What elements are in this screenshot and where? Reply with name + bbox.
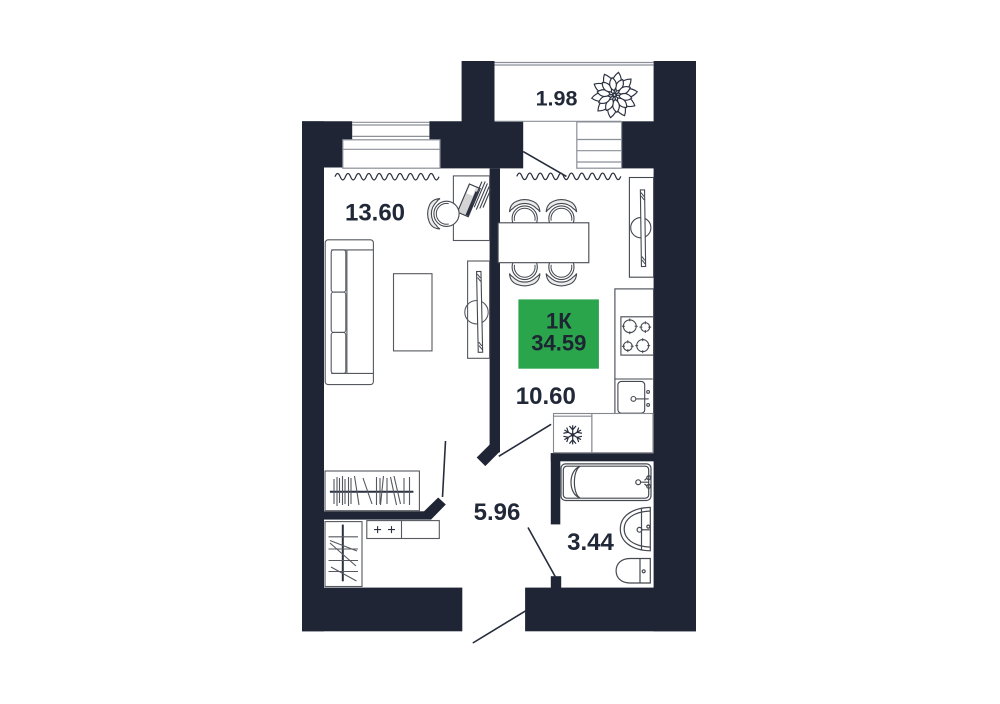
svg-text:1.98: 1.98: [536, 86, 578, 110]
svg-text:3.44: 3.44: [567, 529, 614, 556]
svg-text:13.60: 13.60: [345, 199, 405, 226]
svg-text:34.59: 34.59: [531, 331, 586, 356]
svg-text:10.60: 10.60: [516, 383, 576, 410]
svg-text:5.96: 5.96: [474, 499, 521, 526]
